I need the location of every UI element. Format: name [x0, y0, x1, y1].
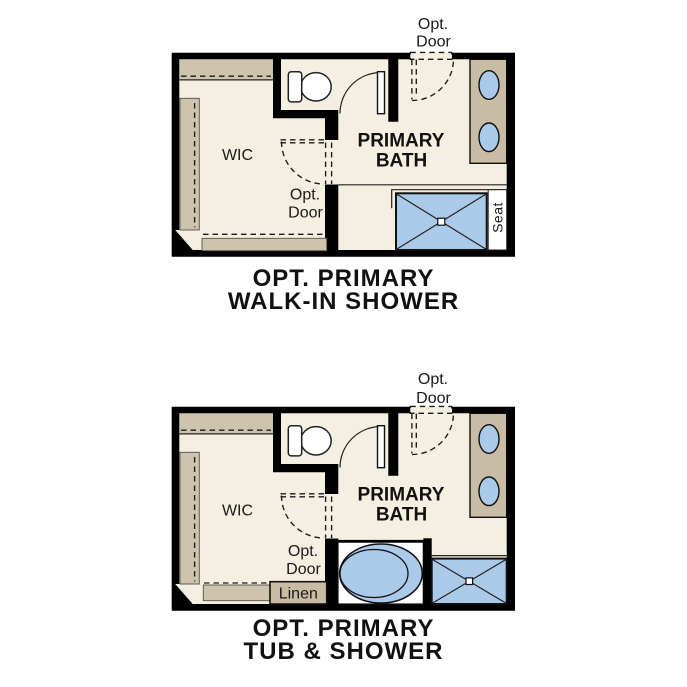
opt-door-label: Opt. [418, 16, 448, 33]
opt-door-label: Opt. [288, 543, 318, 560]
caption-line: WALK-IN SHOWER [0, 290, 687, 313]
toilet-bowl [301, 73, 331, 101]
primary-bath-label: BATH [376, 151, 427, 172]
toilet-door-leaf [378, 72, 385, 114]
caption-line: OPT. PRIMARY [0, 267, 687, 290]
primary-bath-label: PRIMARY [358, 485, 445, 506]
shower-drain [438, 218, 445, 225]
floorplans-canvas: Seat Opt. Door WIC PRIMARY BATH Opt. Doo… [0, 0, 687, 687]
opt-door-label: Door [286, 561, 321, 578]
sink [479, 71, 499, 100]
wic-label: WIC [222, 503, 253, 520]
floorplan-page: Seat Opt. Door WIC PRIMARY BATH Opt. Doo… [0, 0, 687, 687]
bathtub [340, 544, 423, 603]
opt-door-label: Door [288, 205, 323, 222]
seat-label: Seat [489, 202, 505, 233]
shower-drain [466, 578, 473, 585]
opt-door-label: Door [416, 34, 451, 51]
caption-line: TUB & SHOWER [0, 640, 687, 663]
toilet-tank [288, 72, 301, 102]
caption-tub-and-shower: OPT. PRIMARY TUB & SHOWER [0, 617, 687, 663]
primary-bath-label: PRIMARY [358, 131, 445, 152]
opt-door-label: Door [416, 390, 451, 407]
wic-left-shelf [180, 98, 199, 230]
caption-walk-in-shower: OPT. PRIMARY WALK-IN SHOWER [0, 267, 687, 313]
wic-bottom-shelf [203, 585, 270, 601]
wic-label: WIC [222, 147, 253, 164]
caption-line: OPT. PRIMARY [0, 617, 687, 640]
opt-door-label: Opt. [290, 187, 320, 204]
primary-bath-label: BATH [376, 505, 427, 526]
opt-door-label: Opt. [418, 371, 448, 388]
wic-bottom-shelf [202, 238, 327, 250]
wall-stub [423, 538, 431, 604]
linen-label: Linen [279, 586, 318, 603]
sink [479, 123, 499, 152]
